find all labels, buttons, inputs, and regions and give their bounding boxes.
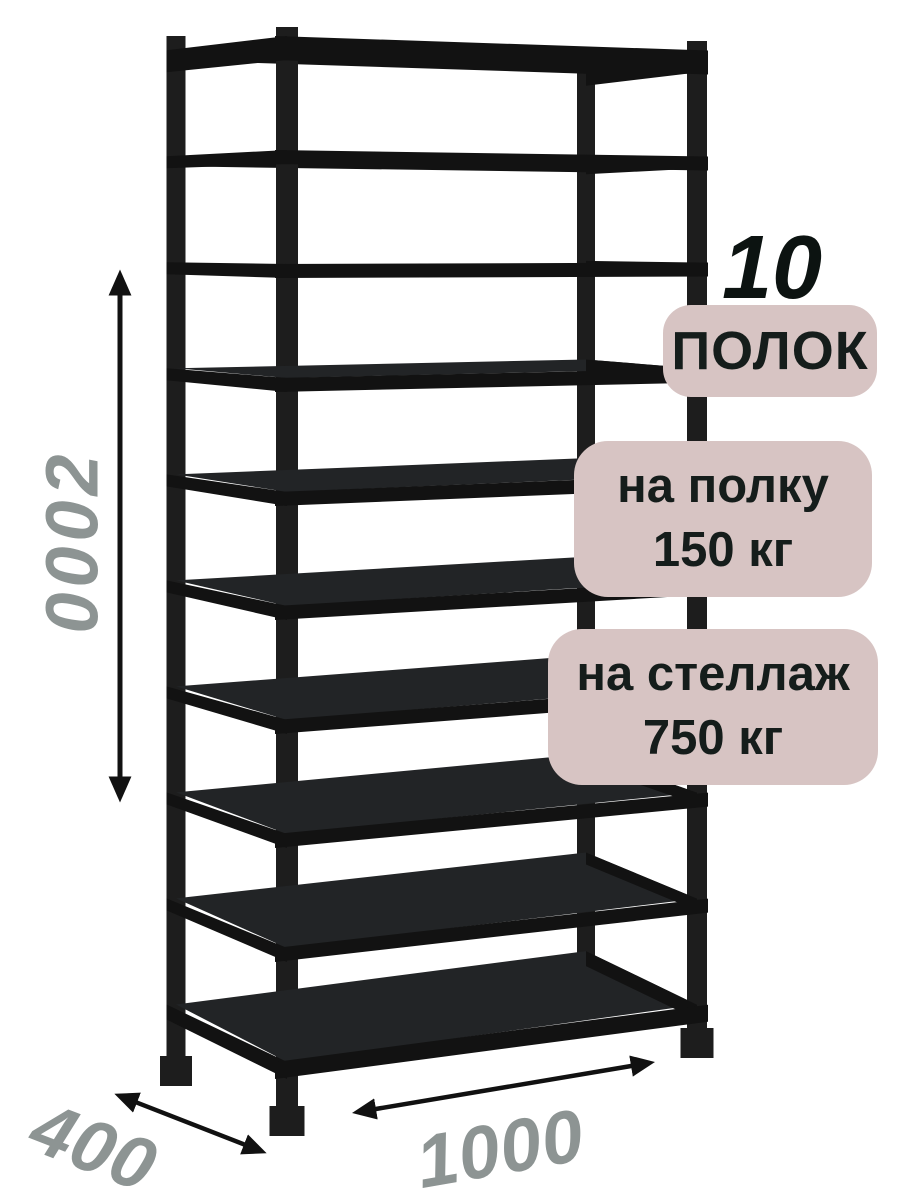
shelf-load-badge-line1: на полку xyxy=(617,455,829,519)
shelf-load-badge-line2: 150 кг xyxy=(653,519,793,583)
product-image: 2000 400 1000 10 ПОЛОК на полку 150 кг н… xyxy=(0,0,900,1200)
shelf-count-badge-label: ПОЛОК xyxy=(671,320,868,382)
rack-load-badge-line2: 750 кг xyxy=(643,707,783,771)
shelf-load-badge: на полку 150 кг xyxy=(574,441,872,597)
shelf-count-badge: ПОЛОК xyxy=(663,305,877,397)
shelf-count-number: 10 xyxy=(712,218,832,318)
rack-load-badge: на стеллаж 750 кг xyxy=(548,629,878,785)
height-dimension-label: 2000 xyxy=(36,452,108,636)
rack-load-badge-line1: на стеллаж xyxy=(576,643,849,707)
